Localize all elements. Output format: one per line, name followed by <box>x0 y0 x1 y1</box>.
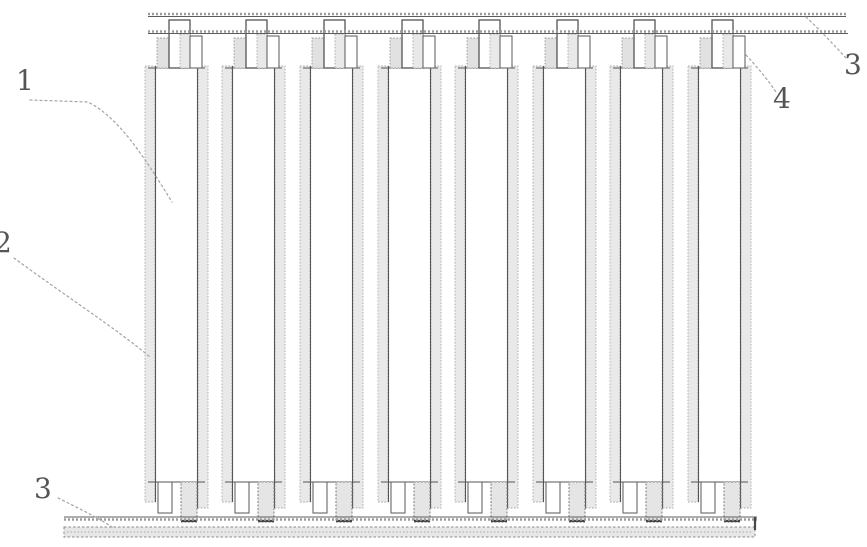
plate-7 <box>610 20 673 522</box>
label-2: 2 <box>0 226 12 259</box>
top-rail <box>148 14 848 34</box>
bottom-bar <box>64 527 755 537</box>
plate-5 <box>455 20 518 522</box>
plate-3 <box>300 20 363 522</box>
plate-6 <box>533 20 596 522</box>
bottom-support <box>64 517 757 537</box>
plate-4 <box>378 20 441 522</box>
label-3-bottom: 3 <box>34 472 52 505</box>
label-3-top-right: 3 <box>844 48 862 81</box>
figure-canvas: 1 2 3 3 4 <box>0 0 867 547</box>
leader-line-3-bottom <box>58 498 112 527</box>
leader-line-2 <box>14 258 150 357</box>
plate-stack <box>145 20 751 522</box>
label-4: 4 <box>773 82 791 115</box>
plate-2 <box>222 20 285 522</box>
leader-line-3-top <box>806 17 846 58</box>
label-1: 1 <box>16 64 34 97</box>
plate-1 <box>145 20 208 522</box>
plate-8 <box>688 20 751 522</box>
